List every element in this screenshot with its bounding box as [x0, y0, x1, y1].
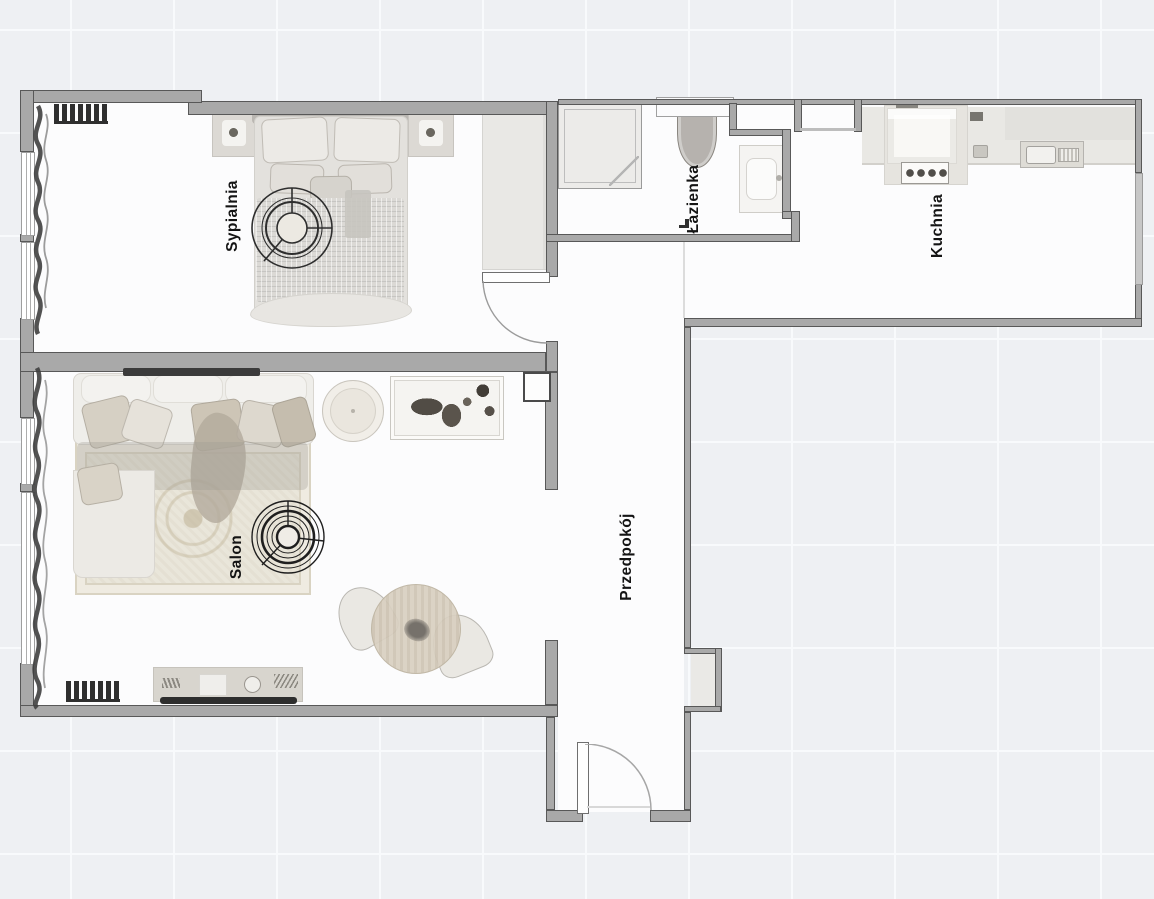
counter-dial [973, 145, 988, 158]
table-centerpiece [401, 615, 433, 645]
bed-pillow [333, 117, 400, 163]
floor-plan: Sypialnia Salon Łazienka Kuchnia Przedpo… [0, 0, 1154, 899]
decor-scribble [162, 678, 180, 688]
counter-appliance [970, 112, 983, 121]
curtain-bedroom [28, 104, 60, 336]
wall [546, 234, 800, 242]
curtain-living [27, 366, 59, 710]
wall-art [390, 376, 504, 440]
wall [546, 717, 555, 810]
room-label-living: Salon [228, 535, 246, 579]
upper-cabinets [1005, 107, 1135, 140]
sink-drainer [1058, 148, 1079, 162]
entrance-door-arc [583, 744, 653, 814]
entrance-threshold [587, 806, 650, 808]
wall [715, 648, 722, 712]
shower-corner-line [609, 156, 639, 186]
wall [20, 705, 558, 717]
wall [545, 640, 558, 705]
wardrobe [482, 108, 548, 270]
sink-bowl [1026, 146, 1056, 164]
wall [546, 101, 558, 277]
room-label-hallway: Przedpokój [618, 513, 636, 601]
living-opening [545, 490, 558, 640]
oven [887, 108, 957, 164]
ceiling-light-bedroom-icon [247, 183, 337, 273]
room-label-bedroom: Sypialnia [224, 180, 242, 252]
nightstand-right [408, 111, 454, 157]
wall [791, 211, 800, 242]
hallway-niche-floor [691, 654, 715, 706]
radiator-living [66, 681, 120, 702]
wall [20, 352, 546, 372]
plant-icon [228, 127, 239, 138]
radiator-bedroom [54, 104, 108, 124]
bed-runner [345, 190, 371, 238]
room-label-kitchen: Kuchnia [929, 194, 947, 258]
wall [20, 90, 202, 103]
wall [188, 101, 558, 115]
basin-bowl [746, 158, 777, 200]
kitchen-sink [1020, 141, 1084, 168]
stove-unit [884, 105, 968, 185]
wall [558, 99, 1142, 105]
structural-column [523, 372, 551, 402]
decor-plate [244, 676, 261, 693]
burners [901, 162, 949, 184]
tv [160, 697, 297, 704]
window-kitchen [1135, 173, 1143, 285]
wall [546, 341, 558, 372]
wall [684, 318, 1142, 327]
kitchen-threshold-line [683, 242, 685, 318]
pouf-center-dot [351, 409, 355, 413]
bed-pillow [261, 116, 329, 163]
sofa-pillow [76, 462, 124, 507]
wall [1135, 99, 1142, 173]
toilet-bowl [677, 113, 717, 168]
plant-icon [425, 127, 436, 138]
wall-mounted-tv [123, 368, 260, 376]
decor-box [199, 674, 227, 696]
ceiling-light-living-icon [250, 499, 326, 575]
wall [684, 327, 691, 648]
wall [684, 712, 691, 810]
shower-cabin [558, 103, 642, 189]
wall [782, 129, 791, 217]
sofa-back-cushion [153, 375, 223, 403]
decor-plant [274, 674, 298, 688]
washbasin [739, 145, 786, 213]
round-pouf [322, 380, 384, 442]
bedroom-door-arc [482, 281, 548, 345]
dining-table [371, 584, 461, 674]
room-label-bathroom: Łazienka [685, 165, 703, 234]
shaft-bottom-line [800, 128, 856, 131]
wall [650, 810, 691, 822]
